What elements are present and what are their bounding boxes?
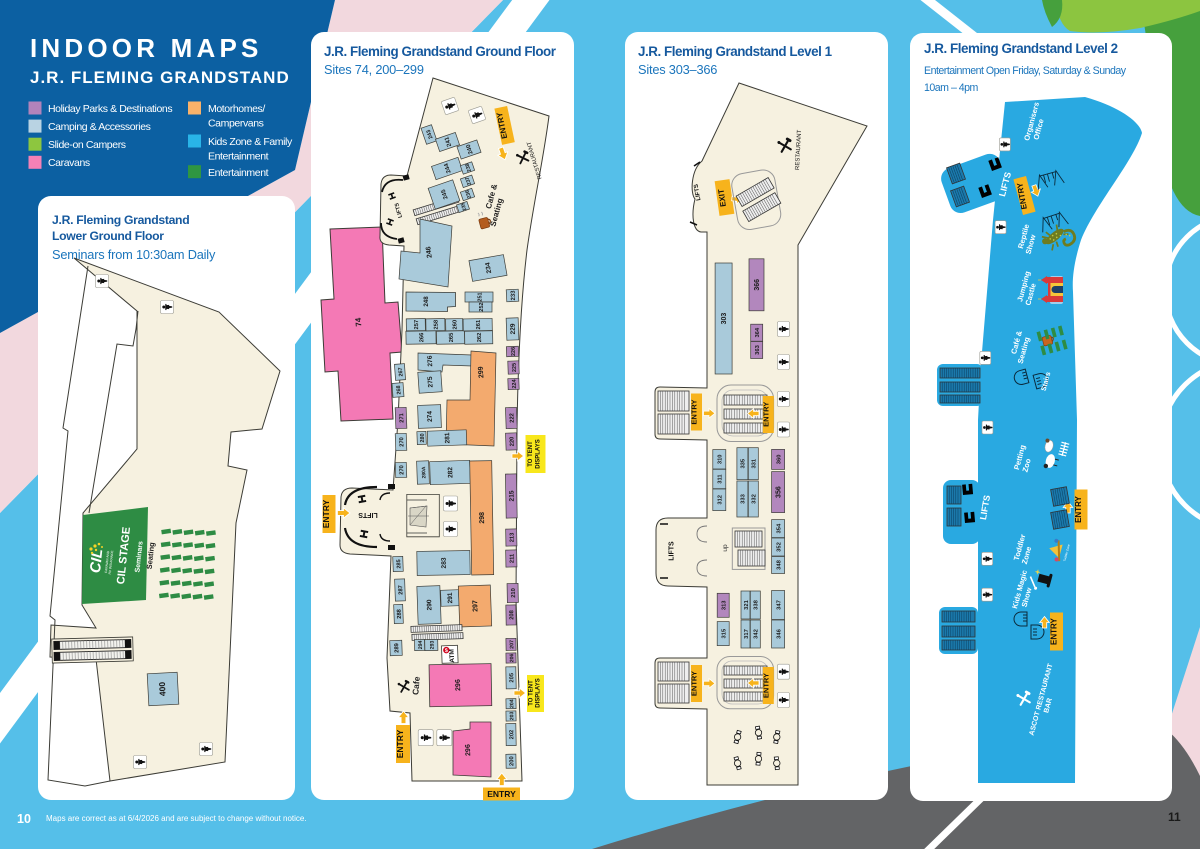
- svg-text:364: 364: [755, 327, 761, 337]
- svg-text:266: 266: [419, 332, 425, 343]
- svg-text:313: 313: [722, 600, 728, 610]
- svg-text:298: 298: [479, 512, 486, 524]
- svg-text:Maps are correct as at 6/4/202: Maps are correct as at 6/4/2026 and are …: [46, 814, 307, 823]
- svg-text:J.R. Fleming Grandstand Ground: J.R. Fleming Grandstand Ground Floor: [324, 44, 557, 59]
- svg-text:310: 310: [718, 454, 724, 464]
- svg-text:J.R. Fleming Grandstand Level: J.R. Fleming Grandstand Level 2: [924, 41, 1118, 56]
- svg-text:222: 222: [509, 413, 515, 423]
- svg-text:229: 229: [510, 323, 517, 335]
- svg-text:Holiday Parks & Destinations: Holiday Parks & Destinations: [48, 103, 172, 115]
- svg-text:315: 315: [722, 628, 728, 638]
- svg-text:Campervans: Campervans: [208, 118, 264, 130]
- svg-text:205: 205: [509, 672, 515, 683]
- svg-text:J.R. Fleming Grandstand: J.R. Fleming Grandstand: [52, 213, 189, 227]
- svg-text:Entertainment Open Friday, Sat: Entertainment Open Friday, Saturday & Su…: [924, 65, 1127, 77]
- svg-text:258: 258: [434, 319, 440, 330]
- svg-text:ENTRY: ENTRY: [761, 402, 770, 427]
- svg-text:356: 356: [775, 486, 782, 498]
- svg-text:312: 312: [718, 495, 724, 505]
- svg-text:$: $: [445, 648, 448, 654]
- svg-text:267: 267: [398, 367, 405, 377]
- svg-text:317: 317: [744, 629, 750, 639]
- svg-text:ENTRY: ENTRY: [1050, 618, 1059, 645]
- svg-text:287: 287: [398, 585, 404, 595]
- svg-text:360: 360: [776, 455, 782, 465]
- svg-text:342: 342: [754, 629, 760, 639]
- svg-text:10: 10: [17, 812, 31, 826]
- svg-text:246: 246: [425, 246, 433, 259]
- svg-text:ENTRY: ENTRY: [761, 673, 770, 698]
- svg-text:206: 206: [509, 653, 515, 662]
- svg-text:Camping & Accessories: Camping & Accessories: [48, 121, 151, 133]
- svg-text:268: 268: [396, 385, 403, 395]
- svg-text:203: 203: [509, 711, 515, 720]
- svg-text:274: 274: [427, 411, 434, 423]
- svg-text:ENTRY: ENTRY: [321, 499, 331, 528]
- svg-text:ATM: ATM: [449, 649, 456, 663]
- svg-text:248: 248: [423, 296, 430, 307]
- svg-text:285: 285: [396, 559, 402, 568]
- svg-text:363: 363: [755, 344, 761, 354]
- svg-text:400: 400: [157, 681, 168, 696]
- svg-text:225: 225: [512, 363, 518, 372]
- svg-text:Entertainment: Entertainment: [208, 151, 269, 163]
- svg-text:311: 311: [718, 474, 724, 484]
- svg-text:DISPLAYS: DISPLAYS: [536, 439, 542, 468]
- svg-text:DISPLAYS: DISPLAYS: [536, 678, 542, 707]
- svg-text:289: 289: [394, 642, 400, 653]
- svg-text:366: 366: [754, 279, 761, 291]
- svg-text:up: up: [722, 544, 729, 552]
- svg-text:348: 348: [776, 559, 782, 569]
- svg-text:220: 220: [509, 437, 515, 447]
- svg-text:207: 207: [509, 640, 515, 649]
- svg-text:257: 257: [414, 320, 420, 330]
- svg-text:291: 291: [447, 592, 454, 604]
- svg-text:204: 204: [509, 699, 515, 708]
- svg-text:TO TENT: TO TENT: [529, 680, 535, 706]
- svg-text:Caravans: Caravans: [48, 157, 90, 169]
- svg-text:283: 283: [441, 557, 448, 568]
- svg-text:224: 224: [512, 378, 518, 388]
- svg-text:Kids Zone & Family: Kids Zone & Family: [208, 136, 293, 148]
- svg-text:346: 346: [776, 628, 782, 638]
- svg-text:ENTRY: ENTRY: [690, 671, 699, 696]
- svg-text:347: 347: [776, 600, 782, 610]
- svg-text:288: 288: [397, 608, 403, 619]
- svg-text:210: 210: [511, 588, 517, 598]
- svg-text:331: 331: [752, 458, 758, 468]
- svg-text:338: 338: [754, 599, 760, 609]
- svg-text:294: 294: [418, 640, 424, 649]
- svg-text:LIFTS: LIFTS: [669, 541, 676, 561]
- svg-text:260: 260: [452, 320, 458, 330]
- svg-text:ENTRY: ENTRY: [487, 789, 516, 799]
- svg-text:352: 352: [776, 542, 782, 552]
- svg-text:Sites 74, 200–299: Sites 74, 200–299: [324, 62, 424, 77]
- svg-text:215: 215: [508, 490, 515, 501]
- svg-text:335: 335: [741, 458, 747, 468]
- svg-text:333: 333: [741, 493, 747, 503]
- svg-text:Cafe: Cafe: [410, 676, 422, 695]
- svg-text:ENTRY: ENTRY: [395, 729, 405, 758]
- svg-text:282: 282: [447, 467, 454, 479]
- svg-text:211: 211: [510, 553, 516, 563]
- svg-text:213: 213: [510, 532, 516, 543]
- svg-text:280: 280: [420, 433, 426, 442]
- svg-text:226: 226: [511, 347, 517, 356]
- svg-text:200: 200: [509, 756, 515, 766]
- svg-text:275: 275: [427, 376, 435, 388]
- svg-text:LIFTS: LIFTS: [358, 511, 378, 518]
- svg-text:281: 281: [444, 432, 451, 444]
- svg-text:Sites 303–366: Sites 303–366: [638, 62, 717, 77]
- svg-text:262: 262: [477, 333, 483, 343]
- svg-text:INDOOR MAPS: INDOOR MAPS: [30, 33, 263, 63]
- svg-text:Entertainment: Entertainment: [208, 167, 269, 179]
- svg-text:280A: 280A: [421, 466, 427, 479]
- svg-text:TO TENT: TO TENT: [528, 441, 534, 467]
- svg-text:270: 270: [399, 465, 405, 475]
- svg-text:293: 293: [430, 640, 436, 649]
- svg-text:ENTRY: ENTRY: [690, 399, 699, 424]
- svg-text:J.R. FLEMING GRANDSTAND: J.R. FLEMING GRANDSTAND: [30, 68, 290, 87]
- svg-text:ENTRY: ENTRY: [1074, 495, 1083, 522]
- svg-text:202: 202: [509, 730, 515, 740]
- svg-text:252: 252: [479, 302, 485, 311]
- svg-text:303: 303: [721, 313, 728, 325]
- svg-text:11: 11: [1168, 810, 1181, 824]
- svg-text:74: 74: [354, 317, 364, 327]
- svg-text:Lower Ground Floor: Lower Ground Floor: [52, 229, 164, 243]
- svg-text:296: 296: [455, 679, 462, 691]
- svg-text:Slide-on Campers: Slide-on Campers: [48, 139, 126, 151]
- svg-text:251: 251: [477, 292, 483, 301]
- svg-text:J.R. Fleming Grandstand Level: J.R. Fleming Grandstand Level 1: [638, 44, 833, 59]
- svg-text:276: 276: [427, 355, 435, 367]
- svg-text:271: 271: [399, 412, 405, 423]
- svg-text:321: 321: [744, 599, 750, 609]
- svg-text:296: 296: [465, 744, 472, 756]
- svg-text:265: 265: [449, 332, 455, 343]
- svg-text:270: 270: [399, 437, 405, 447]
- svg-text:208: 208: [509, 609, 515, 620]
- svg-text:332: 332: [752, 494, 758, 504]
- svg-text:290: 290: [426, 599, 433, 611]
- svg-text:354: 354: [776, 523, 782, 533]
- svg-text:299: 299: [478, 366, 486, 378]
- svg-text:233: 233: [511, 290, 518, 301]
- svg-text:Motorhomes/: Motorhomes/: [208, 103, 265, 115]
- svg-text:10am – 4pm: 10am – 4pm: [924, 82, 979, 94]
- svg-text:297: 297: [472, 600, 479, 612]
- svg-text:261: 261: [476, 319, 482, 330]
